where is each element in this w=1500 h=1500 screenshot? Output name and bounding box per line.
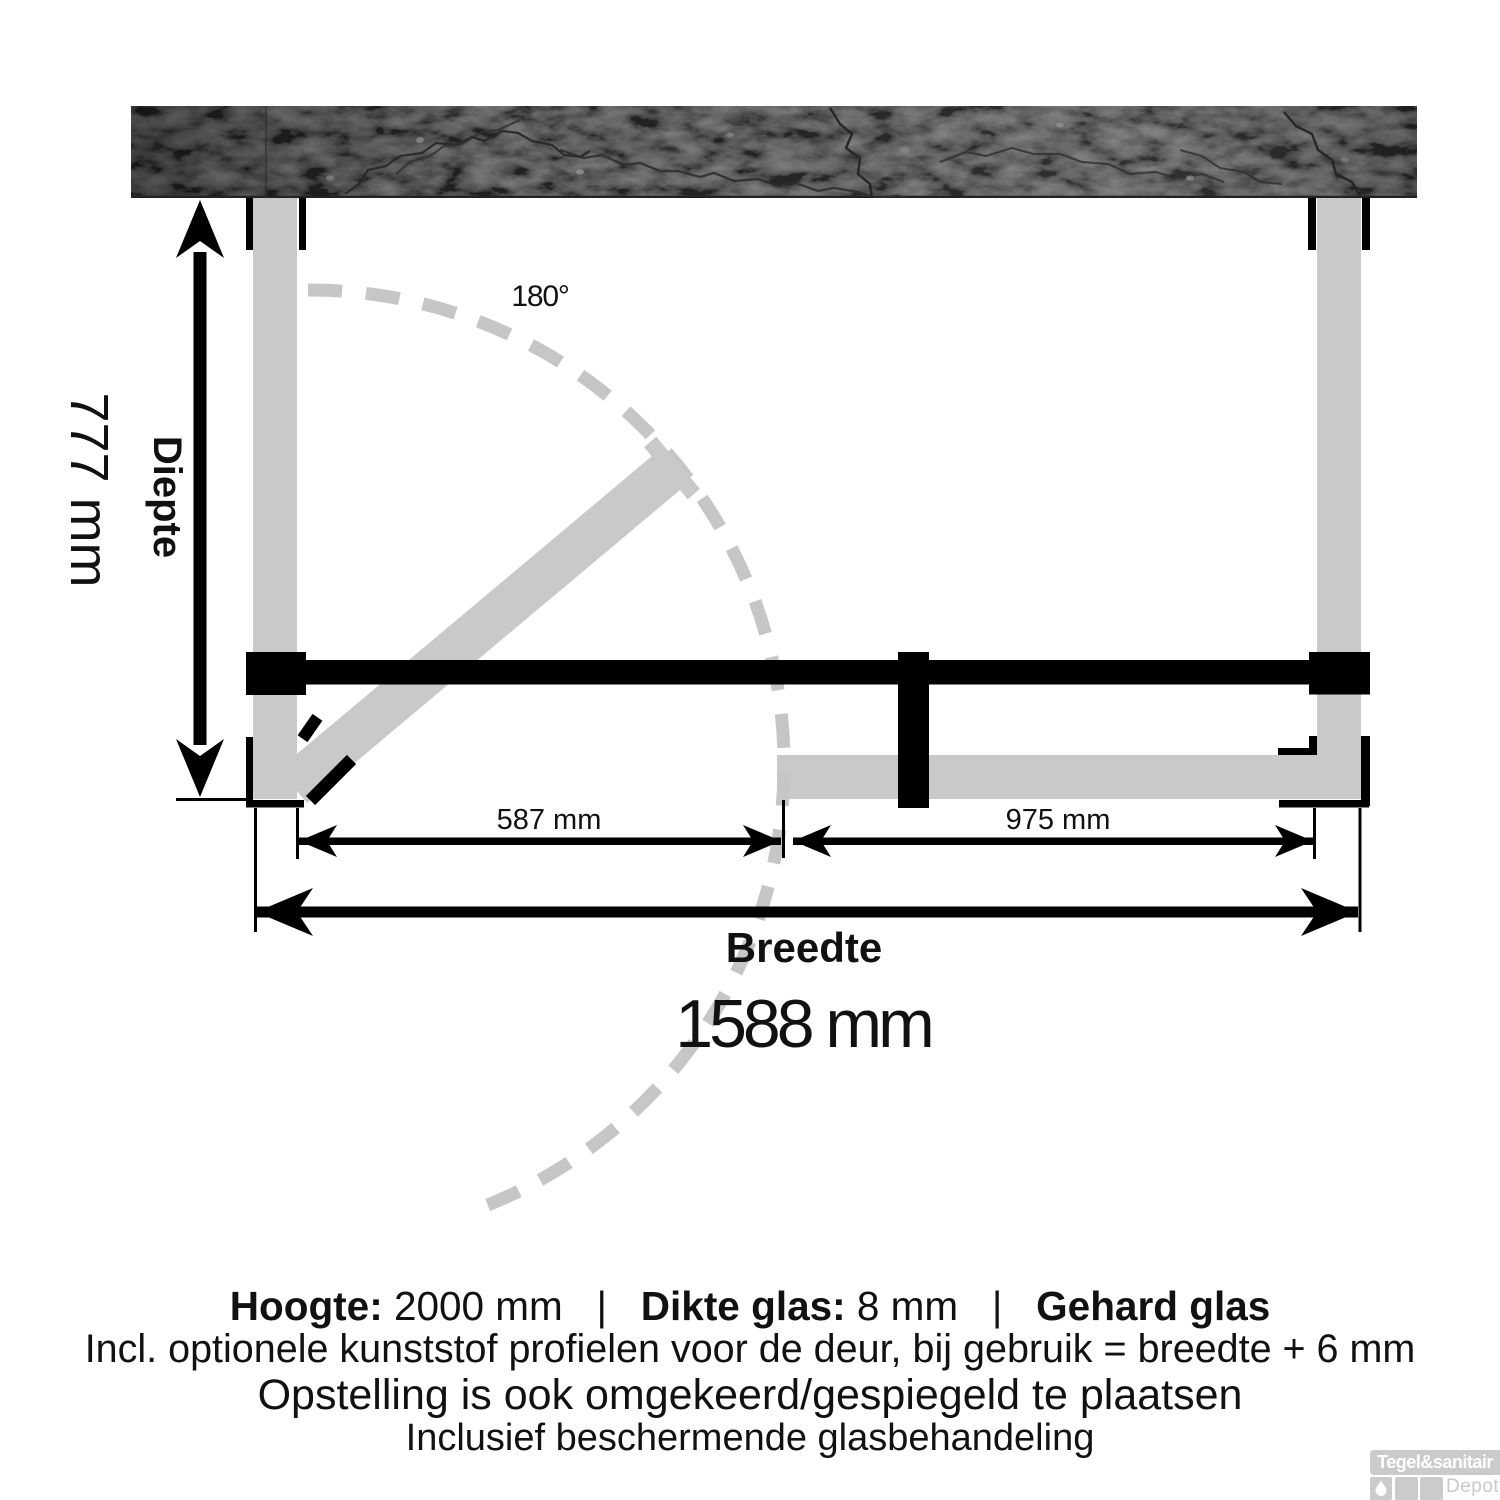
svg-text:975 mm: 975 mm bbox=[1006, 804, 1111, 836]
svg-text:180°: 180° bbox=[511, 280, 568, 313]
svg-text:Diepte: Diepte bbox=[145, 436, 189, 558]
svg-text:1588 mm: 1588 mm bbox=[675, 986, 931, 1062]
svg-text:587 mm: 587 mm bbox=[497, 804, 602, 836]
svg-text:Breedte: Breedte bbox=[726, 924, 882, 971]
svg-text:777 mm: 777 mm bbox=[59, 392, 119, 587]
